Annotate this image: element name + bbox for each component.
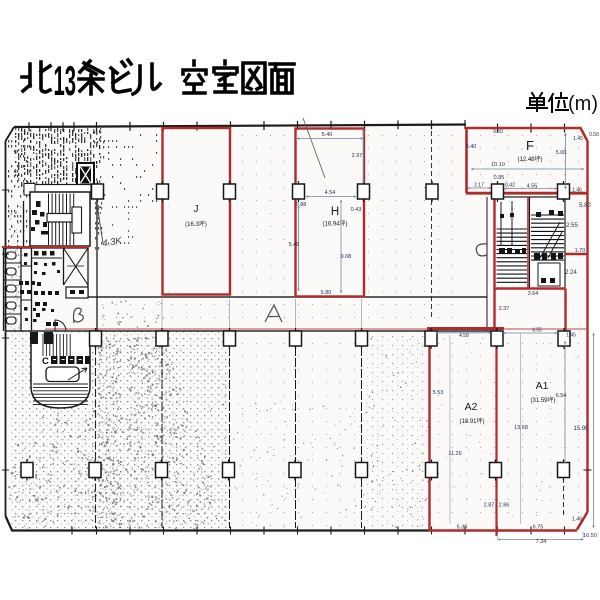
svg-text:5.80: 5.80 xyxy=(321,290,332,296)
svg-text:16.50: 16.50 xyxy=(583,533,597,539)
svg-text:1.70: 1.70 xyxy=(575,248,586,254)
svg-text:1.45: 1.45 xyxy=(566,333,576,339)
svg-text:(12.48坪): (12.48坪) xyxy=(517,155,542,163)
svg-text:2.17: 2.17 xyxy=(474,183,484,189)
svg-text:1.46: 1.46 xyxy=(572,517,583,523)
svg-text:2.97: 2.97 xyxy=(352,153,363,159)
svg-text:J: J xyxy=(194,204,199,215)
svg-text:0.40: 0.40 xyxy=(466,144,477,150)
svg-text:C: C xyxy=(42,356,49,367)
svg-text:2.37: 2.37 xyxy=(499,306,510,312)
svg-text:5.40: 5.40 xyxy=(322,132,333,138)
svg-text:A2: A2 xyxy=(465,401,478,413)
svg-text:2.55: 2.55 xyxy=(566,223,578,229)
svg-text:11.26: 11.26 xyxy=(448,451,461,457)
svg-text:5.45: 5.45 xyxy=(289,242,300,248)
svg-text:0.43: 0.43 xyxy=(351,207,362,213)
svg-text:10.10: 10.10 xyxy=(491,162,505,168)
svg-text:3.64: 3.64 xyxy=(528,291,539,297)
svg-text:(16.94坪): (16.94坪) xyxy=(322,220,347,228)
svg-text:2.24: 2.24 xyxy=(565,270,577,276)
svg-text:F: F xyxy=(526,138,534,153)
svg-text:5.00: 5.00 xyxy=(556,150,567,156)
svg-text:(18.91坪): (18.91坪) xyxy=(459,417,484,425)
svg-text:4.55: 4.55 xyxy=(532,328,542,334)
svg-text:5.39: 5.39 xyxy=(457,525,468,531)
svg-text:5.80: 5.80 xyxy=(579,203,591,209)
svg-text:15.90: 15.90 xyxy=(573,426,589,432)
svg-text:9.50: 9.50 xyxy=(493,129,503,135)
svg-text:6.54: 6.54 xyxy=(556,393,567,399)
svg-text:6.75: 6.75 xyxy=(533,525,544,531)
svg-text:(m): (m) xyxy=(568,93,598,115)
svg-text:4.54: 4.54 xyxy=(325,190,336,196)
svg-text:2.87: 2.87 xyxy=(484,503,495,509)
svg-text:4.55: 4.55 xyxy=(527,184,538,190)
svg-text:0.88: 0.88 xyxy=(296,202,307,208)
svg-text:5.53: 5.53 xyxy=(433,390,444,396)
svg-text:2.86: 2.86 xyxy=(499,503,510,509)
svg-text:0.85: 0.85 xyxy=(494,175,505,181)
svg-text:0.50: 0.50 xyxy=(589,132,599,138)
svg-text:0.42: 0.42 xyxy=(505,183,515,189)
svg-text:4.58: 4.58 xyxy=(459,333,469,339)
svg-text:A1: A1 xyxy=(536,380,549,392)
svg-text:H: H xyxy=(331,206,339,218)
svg-text:(16.3坪): (16.3坪) xyxy=(185,220,207,228)
svg-text:(31.59坪): (31.59坪) xyxy=(530,396,555,404)
svg-text:1.46: 1.46 xyxy=(572,188,582,194)
svg-text:1.45: 1.45 xyxy=(573,136,583,142)
svg-text:13: 13 xyxy=(54,57,77,104)
svg-text:13.68: 13.68 xyxy=(514,425,528,431)
svg-text:9.08: 9.08 xyxy=(341,254,352,260)
svg-text:7.34: 7.34 xyxy=(536,539,547,545)
